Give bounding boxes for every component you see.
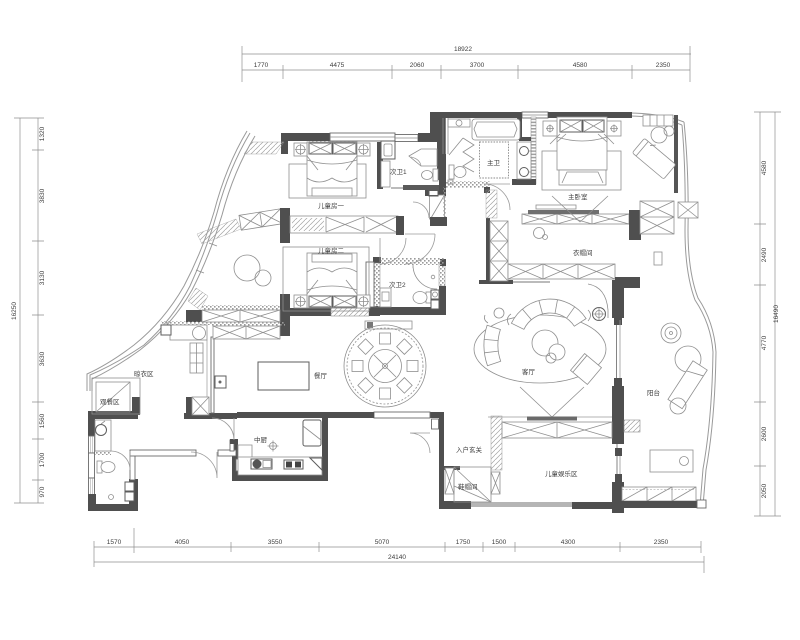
svg-text:4580: 4580 bbox=[573, 62, 588, 69]
svg-text:4300: 4300 bbox=[561, 539, 576, 546]
svg-text:4580: 4580 bbox=[761, 160, 768, 175]
svg-text:次卫1: 次卫1 bbox=[390, 167, 407, 176]
svg-text:4475: 4475 bbox=[330, 62, 345, 69]
svg-text:24140: 24140 bbox=[388, 554, 406, 561]
svg-text:中厨: 中厨 bbox=[254, 435, 268, 444]
svg-text:儿童房一: 儿童房一 bbox=[318, 201, 345, 210]
svg-text:4050: 4050 bbox=[175, 539, 190, 546]
svg-text:970: 970 bbox=[39, 486, 46, 497]
svg-text:主卧室: 主卧室 bbox=[568, 192, 588, 201]
svg-text:2060: 2060 bbox=[410, 62, 425, 69]
svg-text:5070: 5070 bbox=[375, 539, 390, 546]
svg-text:1750: 1750 bbox=[456, 539, 471, 546]
svg-text:入户玄关: 入户玄关 bbox=[456, 445, 483, 454]
svg-text:2050: 2050 bbox=[761, 483, 768, 498]
svg-text:1560: 1560 bbox=[39, 413, 46, 428]
svg-text:3830: 3830 bbox=[39, 188, 46, 203]
svg-text:次卫2: 次卫2 bbox=[389, 280, 406, 289]
svg-text:18922: 18922 bbox=[454, 46, 472, 53]
svg-text:16490: 16490 bbox=[773, 305, 780, 323]
svg-text:鞋帽间: 鞋帽间 bbox=[458, 482, 478, 491]
svg-text:主卫: 主卫 bbox=[487, 158, 501, 167]
svg-text:衣帽间: 衣帽间 bbox=[573, 248, 593, 257]
svg-text:儿童房二: 儿童房二 bbox=[318, 246, 345, 255]
svg-text:2350: 2350 bbox=[654, 539, 669, 546]
svg-text:客厅: 客厅 bbox=[522, 367, 536, 376]
svg-text:2600: 2600 bbox=[761, 426, 768, 441]
svg-text:4770: 4770 bbox=[761, 335, 768, 350]
svg-text:儿童娱乐区: 儿童娱乐区 bbox=[545, 469, 578, 478]
svg-text:1320: 1320 bbox=[39, 126, 46, 141]
svg-text:阳台: 阳台 bbox=[647, 388, 660, 397]
svg-text:晾衣区: 晾衣区 bbox=[134, 369, 154, 378]
svg-text:3700: 3700 bbox=[470, 62, 485, 69]
svg-text:3130: 3130 bbox=[39, 270, 46, 285]
svg-text:1700: 1700 bbox=[39, 452, 46, 467]
svg-text:1500: 1500 bbox=[492, 539, 507, 546]
svg-text:1570: 1570 bbox=[107, 539, 122, 546]
svg-text:餐厅: 餐厅 bbox=[314, 371, 328, 380]
svg-text:3550: 3550 bbox=[268, 539, 283, 546]
svg-text:1770: 1770 bbox=[254, 62, 269, 69]
svg-text:观餐区: 观餐区 bbox=[100, 397, 120, 406]
svg-text:16250: 16250 bbox=[11, 302, 18, 320]
svg-text:2350: 2350 bbox=[656, 62, 671, 69]
svg-text:3630: 3630 bbox=[39, 351, 46, 366]
svg-text:2490: 2490 bbox=[761, 247, 768, 262]
